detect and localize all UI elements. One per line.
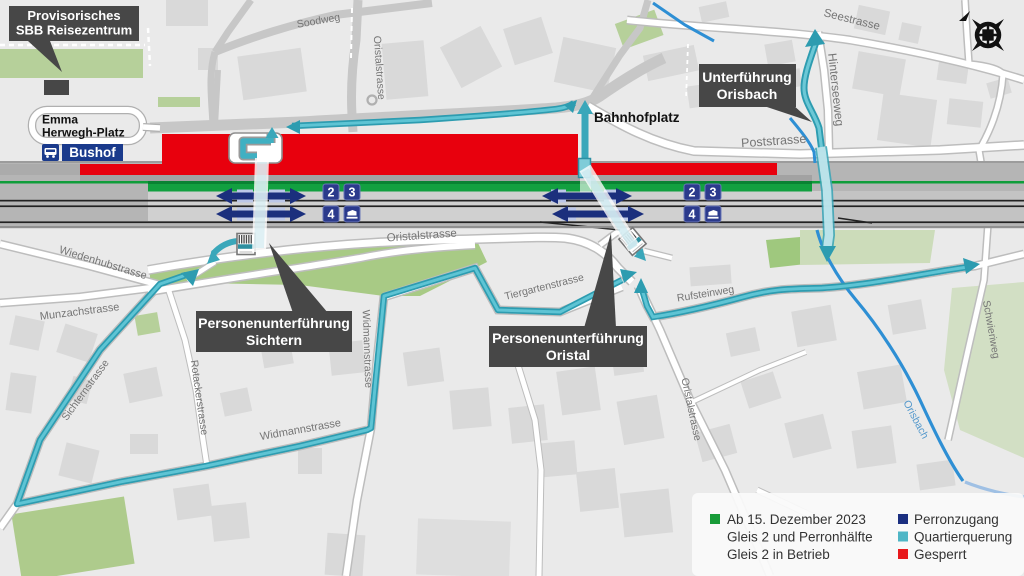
svg-text:Personenunterführung: Personenunterführung	[492, 330, 644, 346]
svg-text:Gleis 2 und Perronhälfte: Gleis 2 und Perronhälfte	[727, 530, 873, 545]
svg-text:Sichtern: Sichtern	[246, 332, 302, 348]
svg-text:Provisorisches: Provisorisches	[27, 8, 120, 23]
svg-text:Orisbach: Orisbach	[717, 86, 778, 102]
svg-text:SBB Reisezentrum: SBB Reisezentrum	[16, 23, 132, 38]
svg-text:3: 3	[349, 186, 356, 200]
svg-text:Bushof: Bushof	[69, 145, 116, 160]
svg-text:2: 2	[328, 186, 335, 200]
svg-text:2: 2	[689, 186, 696, 200]
svg-text:4: 4	[689, 208, 696, 222]
svg-text:Herwegh-Platz: Herwegh-Platz	[42, 126, 125, 140]
svg-text:Personenunterführung: Personenunterführung	[198, 315, 350, 331]
svg-text:Perronzugang: Perronzugang	[914, 512, 999, 527]
svg-text:Emma: Emma	[42, 113, 78, 127]
svg-text:4: 4	[328, 208, 335, 222]
svg-text:Unterführung: Unterführung	[702, 69, 791, 85]
svg-text:Quartierquerung: Quartierquerung	[914, 530, 1012, 545]
svg-text:Ab 15. Dezember 2023: Ab 15. Dezember 2023	[727, 512, 866, 527]
svg-text:Bahnhofplatz: Bahnhofplatz	[594, 110, 680, 125]
svg-text:Oristal: Oristal	[546, 347, 590, 363]
svg-text:Gesperrt: Gesperrt	[914, 547, 967, 562]
svg-text:3: 3	[710, 186, 717, 200]
svg-text:Gleis 2 in Betrieb: Gleis 2 in Betrieb	[727, 547, 830, 562]
